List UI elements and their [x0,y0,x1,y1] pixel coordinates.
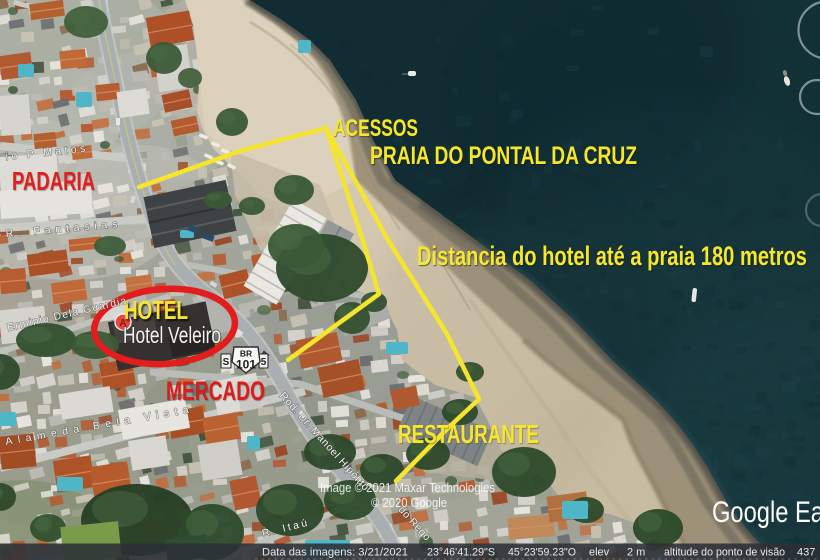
svg-text:PRAIA DO PONTAL DA CRUZ: PRAIA DO PONTAL DA CRUZ [370,142,637,170]
svg-text:5: 5 [261,357,267,368]
svg-text:45°23'59.23"O: 45°23'59.23"O [508,547,576,559]
svg-text:ACESSOS: ACESSOS [333,115,418,142]
svg-text:HOTEL: HOTEL [124,295,188,325]
svg-text:23°46'41.29"S: 23°46'41.29"S [427,547,495,559]
svg-text:altitude do ponto de visão: altitude do ponto de visão [664,547,785,559]
svg-text:2 m: 2 m [627,547,645,559]
svg-text:Distancia do hotel até a praia: Distancia do hotel até a praia 180 metro… [417,241,807,271]
svg-text:S: S [223,357,230,368]
svg-text:MERCADO: MERCADO [166,376,265,406]
svg-text:Data das imagens: 3/21/2021: Data das imagens: 3/21/2021 [262,547,408,559]
svg-text:PADARIA: PADARIA [12,166,95,196]
svg-text:RESTAURANTE: RESTAURANTE [398,419,539,449]
svg-text:Hotel Veleiro: Hotel Veleiro [123,322,221,348]
svg-text:elev: elev [589,547,610,559]
svg-text:437: 437 [797,547,815,559]
svg-text:Google Ea: Google Ea [712,496,820,529]
svg-text:Image © 2021 Maxar Technologie: Image © 2021 Maxar Technologies [320,481,495,495]
svg-text:101: 101 [236,358,256,372]
svg-text:© 2020 Google: © 2020 Google [371,496,447,510]
